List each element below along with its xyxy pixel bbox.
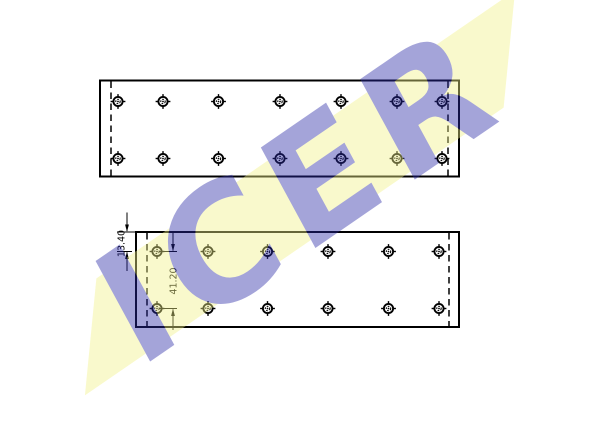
dimension-row-spacing: 41.20 <box>159 233 180 330</box>
rivet-hole <box>201 244 216 259</box>
technical-drawing-page: 13.40 41.20 ICER <box>0 0 600 400</box>
arrowhead-down <box>171 244 175 252</box>
lower-lining-plate <box>136 232 459 327</box>
rivet-hole <box>156 151 171 166</box>
rivet-hole <box>211 94 226 109</box>
rivet-hole <box>432 244 447 259</box>
arrowhead-up <box>171 309 175 317</box>
rivet-hole <box>321 244 336 259</box>
rivet-hole <box>390 151 405 166</box>
rivet-hole <box>273 151 288 166</box>
rivet-hole <box>435 151 450 166</box>
rivet-hole <box>260 244 275 259</box>
rivet-hole <box>150 301 165 316</box>
rivet-hole <box>201 301 216 316</box>
dimension-label-top-offset: 13.40 <box>117 230 128 257</box>
plate-outline <box>136 232 459 327</box>
rivet-hole <box>321 301 336 316</box>
upper-lining-plate <box>100 81 459 177</box>
rivet-hole <box>381 244 396 259</box>
dimension-top-offset: 13.40 <box>117 213 139 272</box>
rivet-hole <box>432 301 447 316</box>
rivet-hole <box>150 244 165 259</box>
rivet-hole <box>273 94 288 109</box>
technical-drawing: 13.40 41.20 <box>0 0 600 400</box>
rivet-hole <box>435 94 450 109</box>
rivet-hole <box>334 151 349 166</box>
rivet-hole <box>334 94 349 109</box>
rivet-hole <box>211 151 226 166</box>
rivet-hole <box>111 151 126 166</box>
rivet-hole <box>111 94 126 109</box>
dimension-label-row-spacing: 41.20 <box>169 267 180 294</box>
rivet-hole <box>156 94 171 109</box>
rivet-hole <box>381 301 396 316</box>
rivet-hole <box>260 301 275 316</box>
rivet-hole <box>390 94 405 109</box>
